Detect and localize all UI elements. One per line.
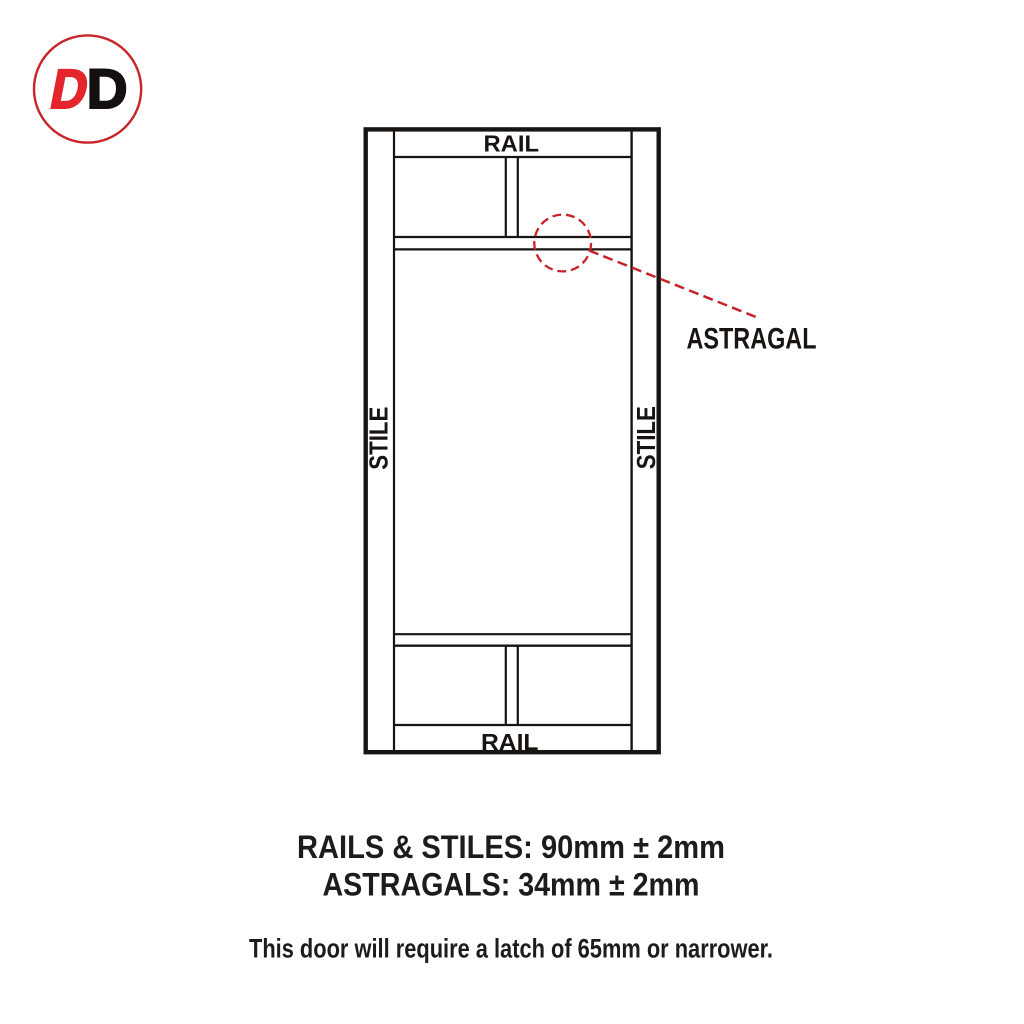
svg-text:D: D [87,58,128,120]
svg-text:This door will require a latch: This door will require a latch of 65mm o… [249,934,773,964]
svg-text:RAIL: RAIL [484,131,540,157]
svg-text:RAILS & STILES: 90mm ± 2mm: RAILS & STILES: 90mm ± 2mm [297,829,725,865]
svg-text:STILE: STILE [633,406,661,469]
svg-text:RAIL: RAIL [481,729,539,755]
svg-text:ASTRAGALS: 34mm ± 2mm: ASTRAGALS: 34mm ± 2mm [323,867,700,903]
svg-text:ASTRAGAL: ASTRAGAL [687,323,817,356]
svg-text:STILE: STILE [366,407,394,470]
